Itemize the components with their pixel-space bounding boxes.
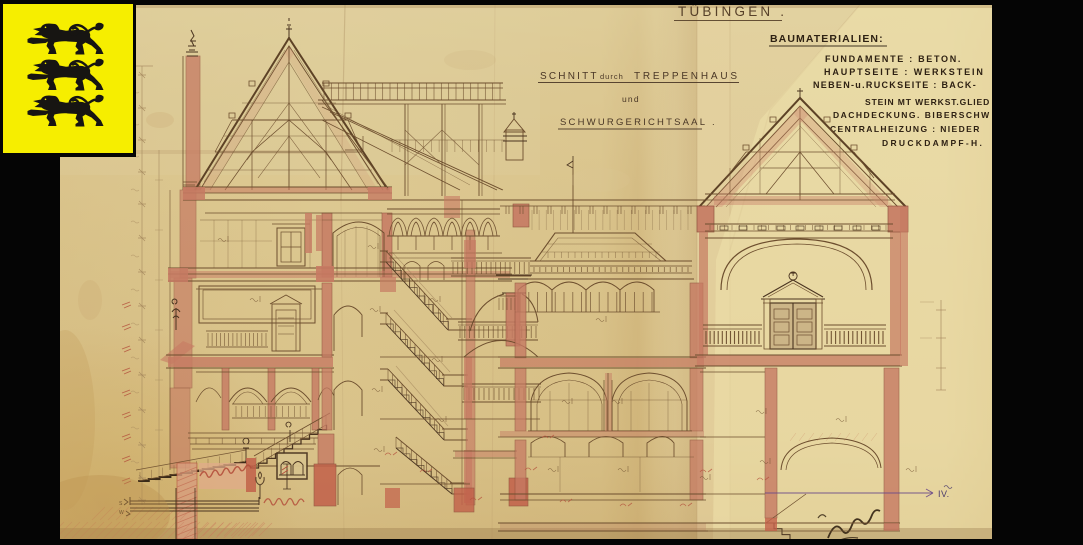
- svg-text:TREPPENHAUS: TREPPENHAUS: [634, 71, 740, 82]
- svg-text:BAUMATERIALIEN:: BAUMATERIALIEN:: [770, 33, 884, 45]
- svg-text:STEIN MT WERKST.GLIED: STEIN MT WERKST.GLIED: [865, 97, 990, 107]
- svg-text:HAUPTSEITE : WERKSTEIN: HAUPTSEITE : WERKSTEIN: [824, 67, 985, 77]
- svg-text:TÜBINGEN .: TÜBINGEN .: [678, 4, 787, 19]
- svg-text:DACHDECKUNG. BIBERSCHW: DACHDECKUNG. BIBERSCHW: [833, 110, 991, 120]
- svg-text:IV.: IV.: [938, 489, 950, 499]
- svg-text:SCHWURGERICHTSAAL .: SCHWURGERICHTSAAL .: [560, 117, 717, 128]
- svg-text:FUNDAMENTE : BETON.: FUNDAMENTE : BETON.: [825, 54, 962, 64]
- svg-text:und: und: [622, 94, 640, 104]
- svg-text:SCHNITT: SCHNITT: [540, 71, 599, 82]
- svg-text:CENTRALHEIZUNG : NIEDER: CENTRALHEIZUNG : NIEDER: [830, 124, 981, 134]
- svg-text:NEBEN-u.RUCKSEITE : BACK-: NEBEN-u.RUCKSEITE : BACK-: [813, 80, 977, 90]
- svg-text:DRUCKDAMPF-H.: DRUCKDAMPF-H.: [882, 138, 984, 148]
- svg-text:durch: durch: [600, 72, 624, 81]
